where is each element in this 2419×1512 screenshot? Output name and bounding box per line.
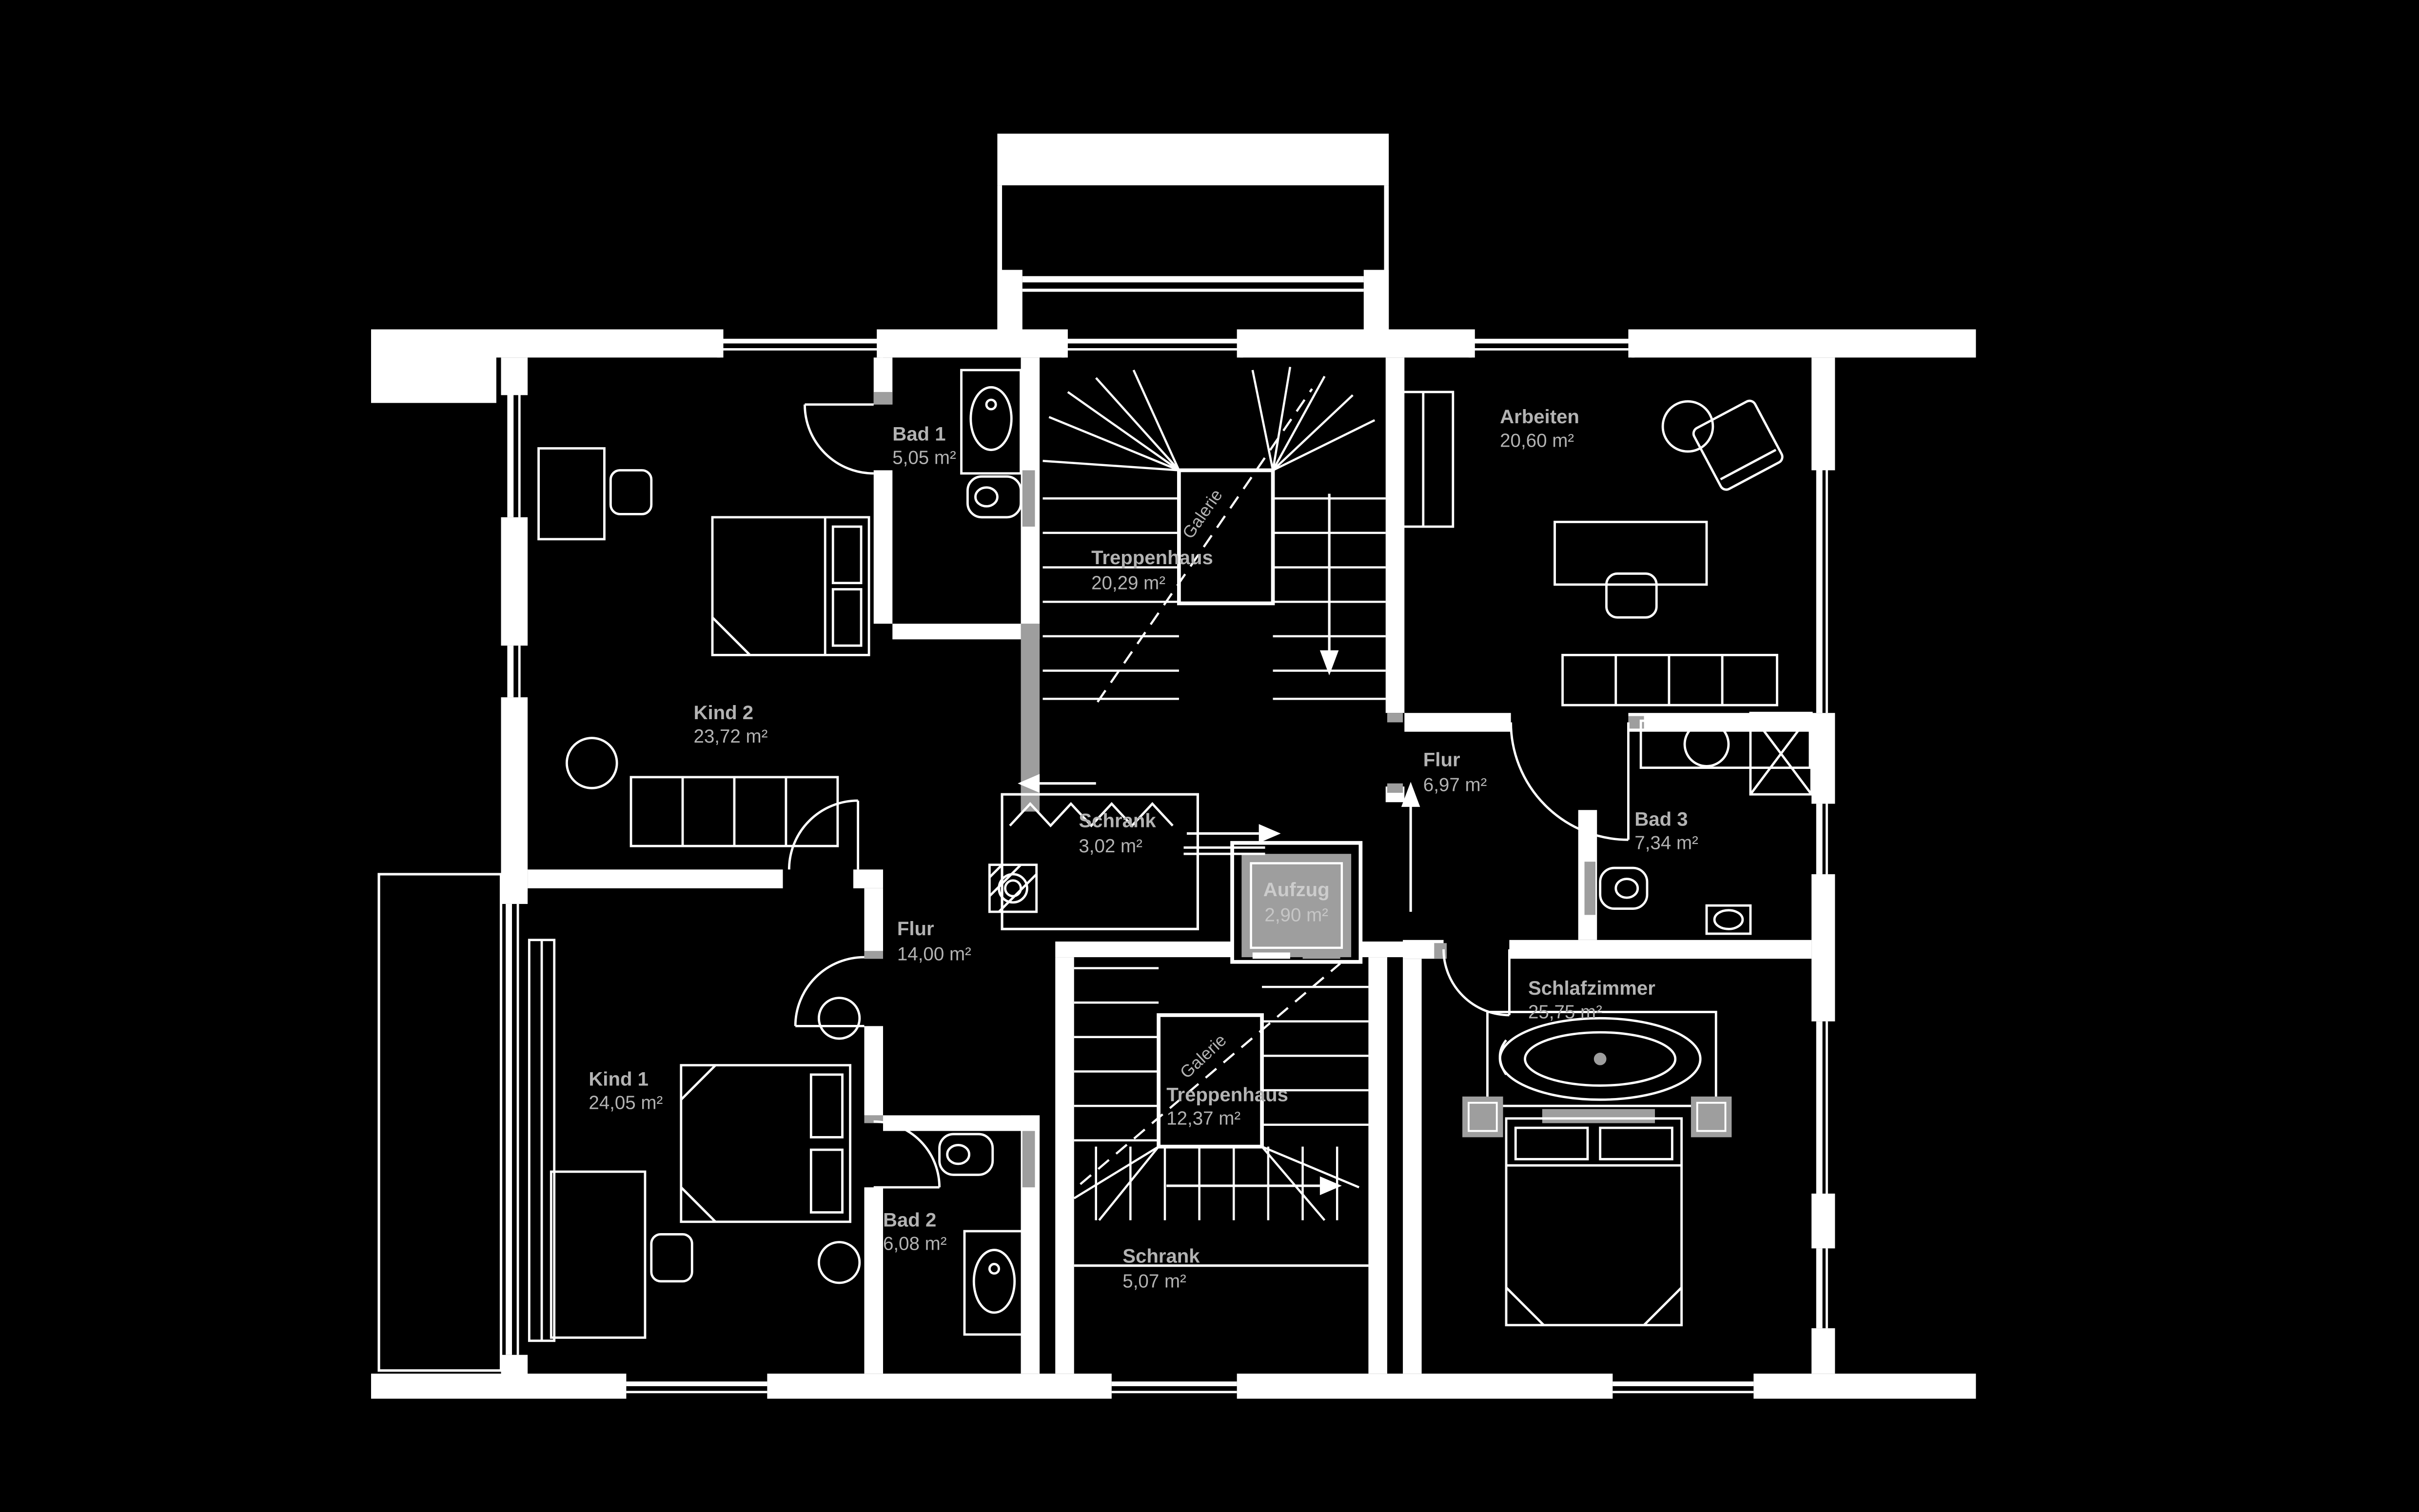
plan-background [0,0,2419,1512]
room-name: Schlafzimmer [1528,977,1655,999]
bench-schlafzimmer [1542,1109,1655,1123]
room-area: 12,37 m² [1166,1108,1240,1129]
room-area: 6,97 m² [1423,775,1487,796]
room-area: 6,08 m² [883,1234,947,1255]
room-area: 23,72 m² [693,726,767,747]
room-area: 5,07 m² [1122,1271,1186,1292]
room-name: Aufzug [1263,879,1330,901]
bay-window [1023,276,1364,282]
floor-plan-canvas: Bad 1 5,05 m² Kind 2 23,72 m² Treppenhau… [0,0,2419,1512]
radiator-bad2 [1023,1131,1035,1188]
room-area: 24,05 m² [589,1093,663,1114]
nightstand-left [1462,1097,1503,1137]
room-area: 5,05 m² [892,448,956,469]
radiator-bad1 [1023,470,1035,527]
room-name: Treppenhaus [1091,547,1213,569]
room-name: Arbeiten [1500,406,1579,428]
room-area: 3,02 m² [1079,836,1142,857]
room-area: 20,29 m² [1091,573,1165,594]
room-name: Bad 2 [883,1209,936,1231]
room-name: Schrank [1079,810,1156,832]
room-area: 20,60 m² [1500,430,1574,451]
room-area: 7,34 m² [1634,833,1698,854]
radiator-bad3 [1585,862,1595,915]
elevator [1232,843,1360,962]
room-area: 14,00 m² [897,944,971,965]
room-name: Treppenhaus [1166,1084,1288,1106]
room-area: 2,90 m² [1264,904,1328,925]
room-name: Kind 1 [589,1068,649,1090]
room-name: Bad 1 [892,423,945,445]
room-name: Schrank [1122,1245,1200,1267]
room-name: Kind 2 [693,702,753,724]
nightstand-right [1691,1097,1731,1137]
room-name: Bad 3 [1634,808,1688,830]
room-name: Flur [1423,748,1460,770]
room-name: Flur [897,918,934,940]
room-area: 25,75 m² [1528,1001,1602,1022]
